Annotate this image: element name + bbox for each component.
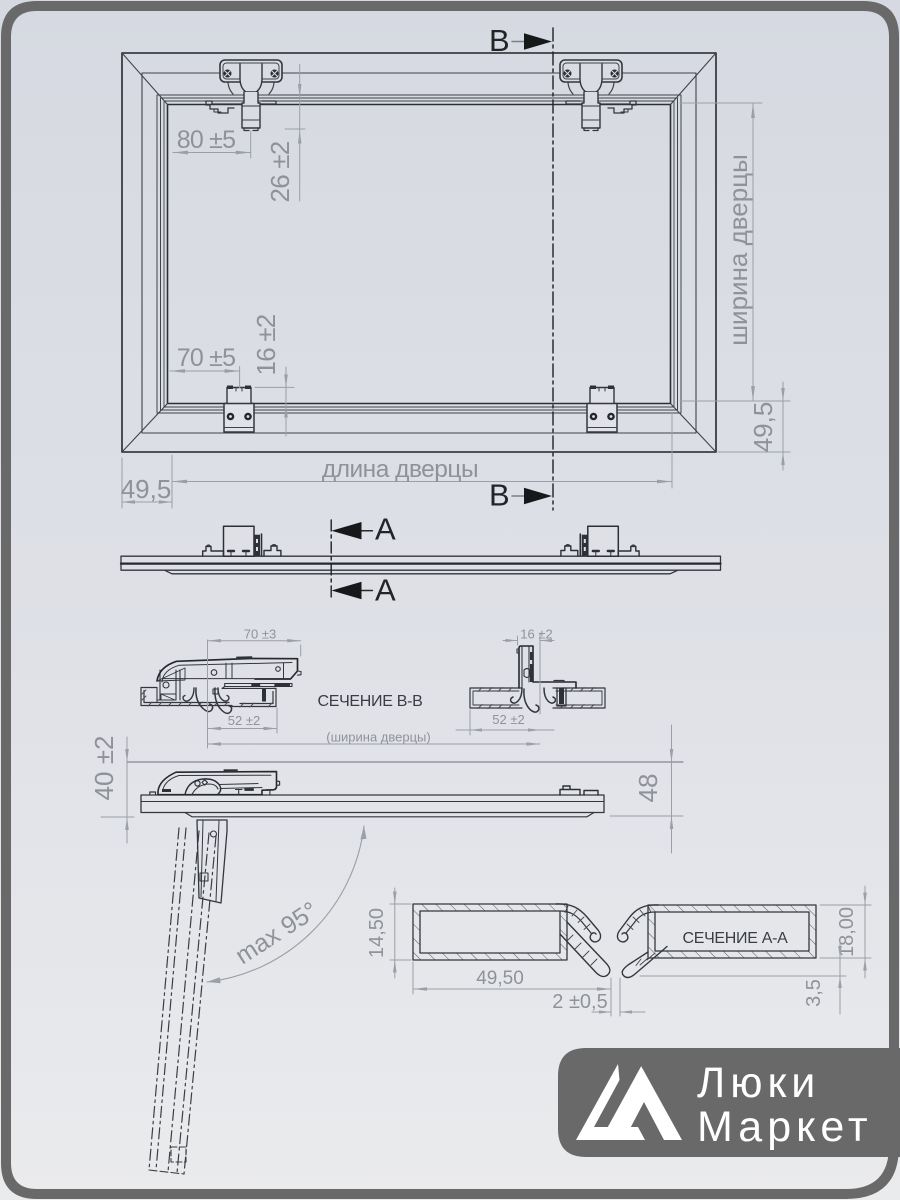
- svg-text:2 ±0,5: 2 ±0,5: [552, 991, 607, 1013]
- svg-text:длина дверцы: длина дверцы: [322, 456, 478, 483]
- svg-text:48: 48: [633, 774, 663, 803]
- svg-text:Маркет: Маркет: [697, 1103, 873, 1151]
- svg-text:СЕЧЕНИЕ B-B: СЕЧЕНИЕ B-B: [317, 693, 422, 710]
- svg-text:B: B: [489, 23, 510, 58]
- svg-text:40 ±2: 40 ±2: [89, 736, 119, 801]
- svg-text:B: B: [489, 478, 510, 513]
- svg-text:A: A: [375, 573, 396, 608]
- svg-text:26 ±2: 26 ±2: [265, 141, 295, 202]
- svg-text:16 ±2: 16 ±2: [520, 627, 552, 642]
- svg-text:Люки: Люки: [697, 1059, 820, 1107]
- svg-text:(ширина дверцы): (ширина дверцы): [326, 730, 430, 745]
- svg-text:80 ±5: 80 ±5: [177, 126, 235, 154]
- svg-text:СЕЧЕНИЕ A-A: СЕЧЕНИЕ A-A: [682, 930, 788, 947]
- svg-text:14,50: 14,50: [366, 908, 388, 958]
- svg-text:70 ±5: 70 ±5: [177, 344, 235, 372]
- svg-text:16 ±2: 16 ±2: [251, 314, 281, 375]
- svg-text:ширина дверцы: ширина дверцы: [723, 154, 753, 346]
- svg-text:49,50: 49,50: [476, 968, 524, 989]
- svg-text:52 ±2: 52 ±2: [228, 713, 260, 728]
- svg-text:70 ±3: 70 ±3: [244, 627, 276, 642]
- svg-text:3,5: 3,5: [803, 979, 825, 1007]
- svg-text:49,5: 49,5: [748, 402, 778, 453]
- svg-text:49,5: 49,5: [121, 474, 172, 504]
- svg-text:A: A: [375, 512, 396, 547]
- svg-text:52 ±2: 52 ±2: [492, 712, 524, 727]
